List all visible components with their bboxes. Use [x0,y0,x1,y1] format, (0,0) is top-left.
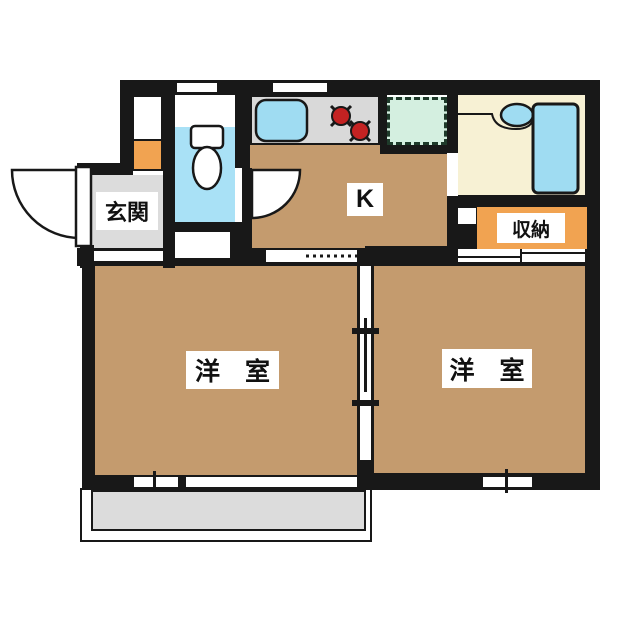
wall-left-lower [82,266,95,490]
partition-post-bottom [357,460,374,490]
floor-plan: 玄関 K 収納 洋 室 洋 室 [0,0,640,640]
toilet-floor [175,127,235,222]
entry-niche [132,95,163,141]
window-top-toilet [177,83,217,92]
storage-door-track-left [458,256,520,258]
window-room-right-mullion [505,469,508,493]
wall-bath-bottom [453,195,590,207]
room-left-label: 洋 室 [186,351,279,389]
wall-right [585,95,600,490]
bathroom-door [447,153,458,196]
storage-door-right [522,249,585,262]
balcony-floor [91,490,366,531]
window-room-left [134,477,178,487]
wall-kitchen-right-upper [447,95,458,153]
wall-genkan-top [77,163,133,175]
wall-toilet-low [230,222,252,250]
bathroom-floor [458,95,585,198]
genkan-step [94,251,163,261]
entrance-door-swing [12,170,80,238]
partition-tick-lower [352,400,379,406]
washing-machine-space [387,97,447,145]
partition-tick-upper [352,328,379,334]
wall-door-jamb [242,168,252,224]
wall-toilet-door-top [175,222,230,232]
storage-label: 収納 [497,213,565,243]
kitchen-sliding-door [266,250,365,262]
kitchen-counter [250,95,380,145]
shoe-cabinet [132,139,163,171]
genkan-label: 玄関 [96,192,158,230]
kitchen-label: K [347,183,383,216]
room-right-label: 洋 室 [442,349,532,388]
wall-toilet-right [235,95,250,168]
window-top-kitchen [273,83,327,92]
partition-post-top [357,248,374,266]
terrace-sliding-door [186,477,361,487]
storage-side-opening [458,208,476,224]
entrance-door-leaf [76,167,91,246]
wall-genkan-toilet [163,95,175,268]
storage-door-track-right [522,252,585,254]
wall-room-right-bottom [358,473,600,490]
toilet-door [175,232,230,258]
